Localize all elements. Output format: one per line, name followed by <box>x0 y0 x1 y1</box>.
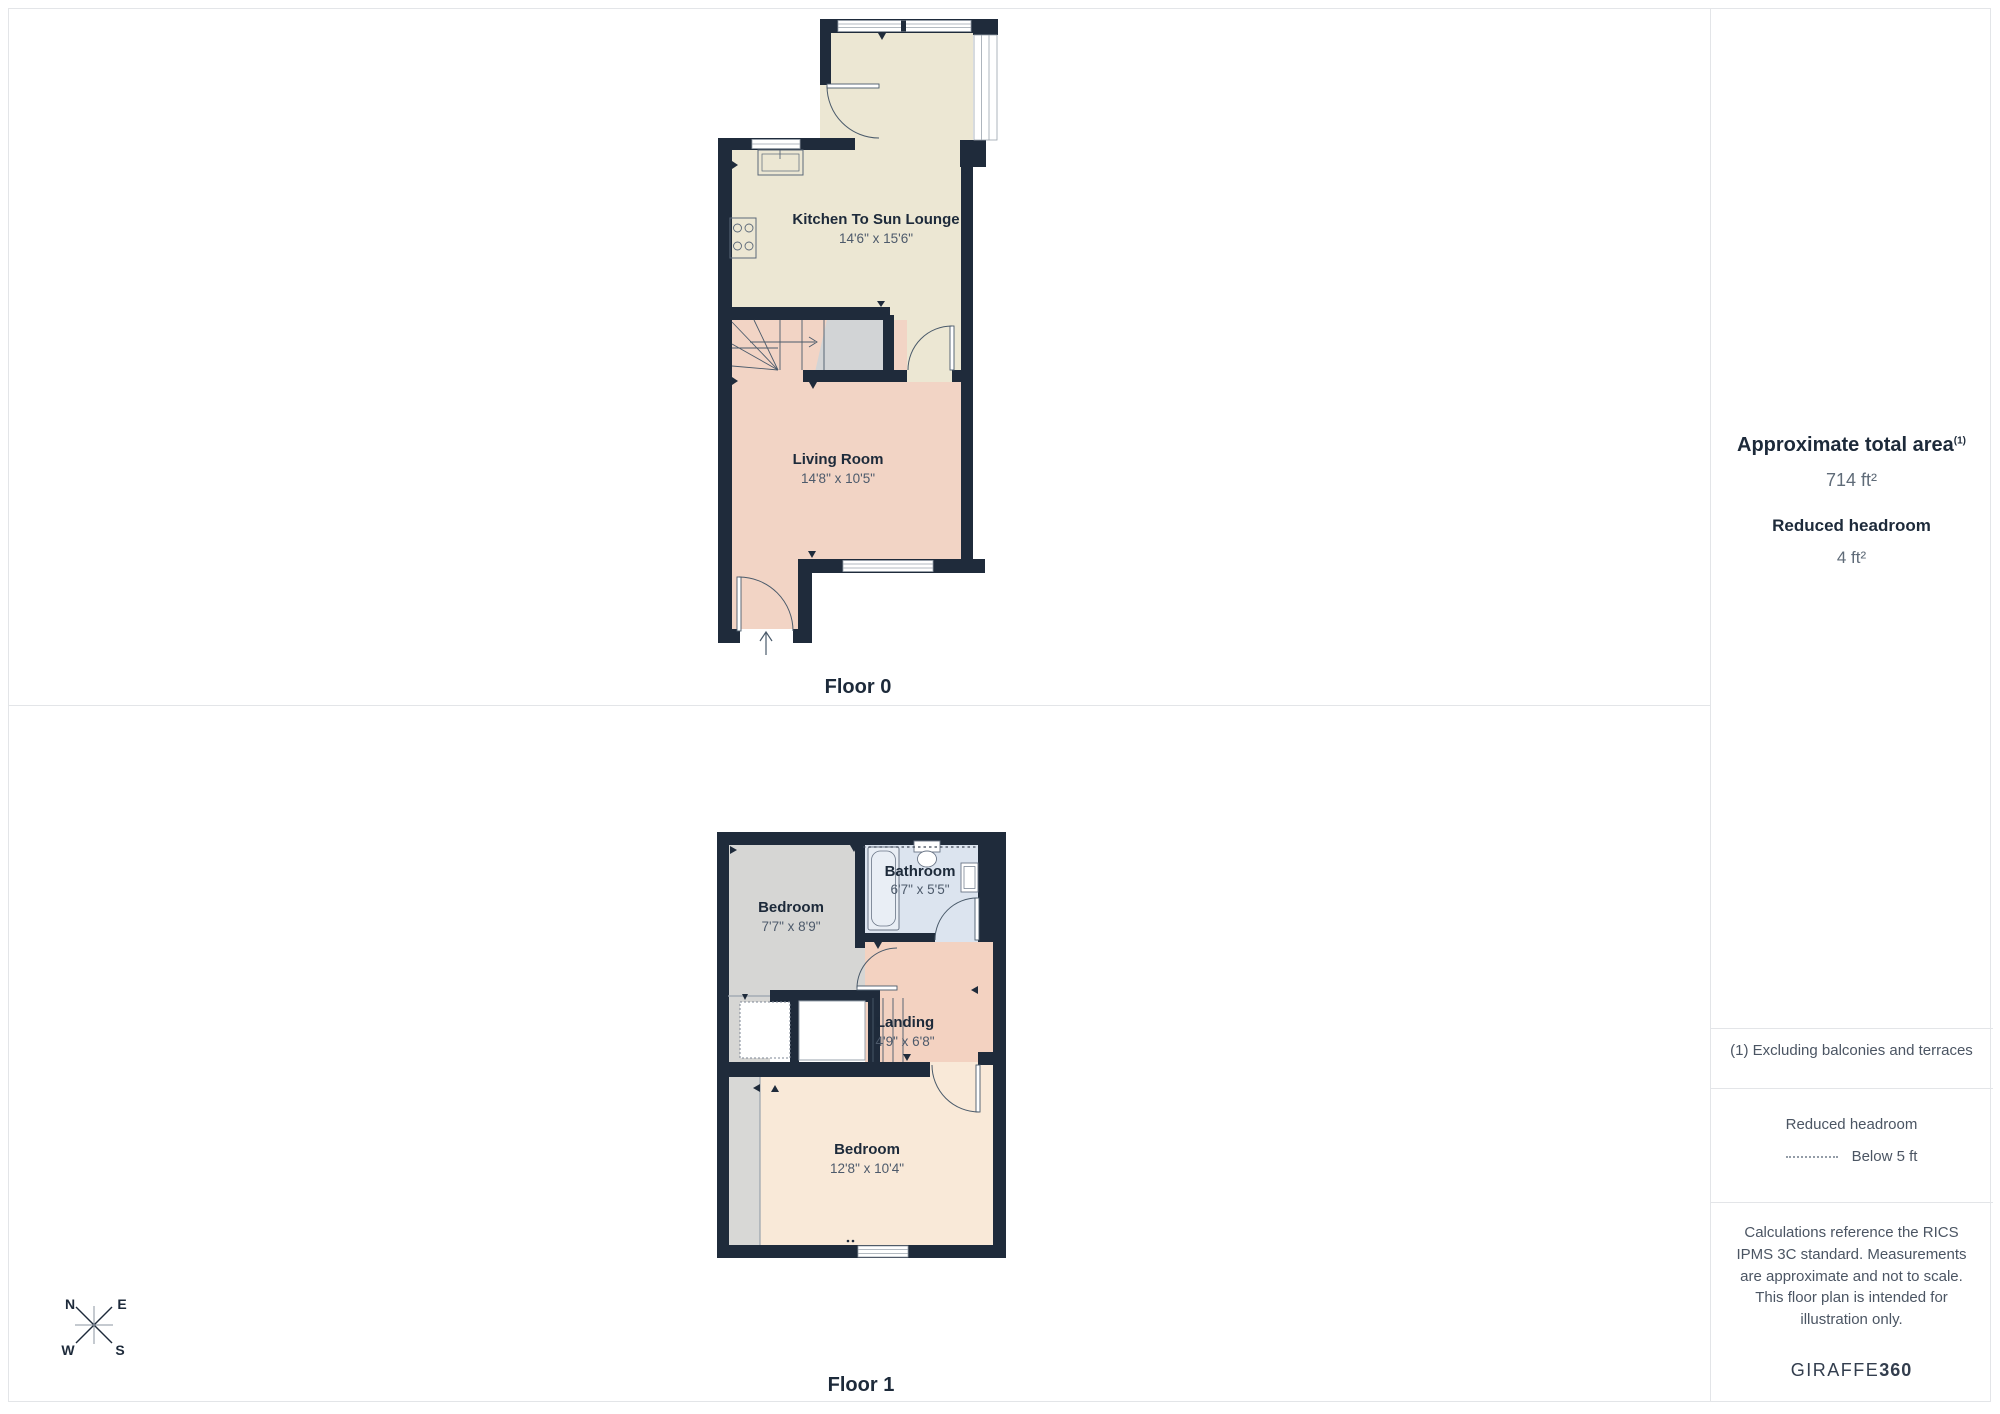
entrance-arrow-icon <box>760 632 772 655</box>
reduced-headroom-title: Reduced headroom <box>1711 516 1992 536</box>
floor0-caption: Floor 0 <box>718 676 998 699</box>
reduced-headroom-value: 4 ft² <box>1711 548 1992 568</box>
compass-icon: N E W S <box>46 1293 142 1389</box>
floor1-caption: Floor 1 <box>715 1374 1007 1397</box>
legend-row: Below 5 ft <box>1711 1148 1992 1165</box>
total-area-value: 714 ft² <box>1711 470 1992 491</box>
sidebar-section-divider-2 <box>1710 1088 1993 1089</box>
room-dims-label: 14'8" x 10'5" <box>801 471 875 486</box>
compass-w: W <box>61 1342 75 1358</box>
brand-logo: GIRAFFE360 <box>1711 1360 1992 1381</box>
bathroom-sink-icon <box>961 863 978 892</box>
total-area-label: Approximate total area <box>1737 434 1954 456</box>
floor-section-divider <box>8 705 1711 706</box>
eaves-storage <box>740 1001 865 1060</box>
floor0-plan: Kitchen To Sun Lounge 14'6" x 15'6" Livi… <box>718 17 998 662</box>
room-dims-label: 12'8" x 10'4" <box>830 1161 904 1176</box>
footnote-text: (1) Excluding balconies and terraces <box>1711 1042 1992 1059</box>
disclaimer-inner: Calculations reference the RICS IPMS 3C … <box>1734 1222 1970 1331</box>
room-name-label: Landing <box>876 1014 934 1031</box>
room-dims-label: 4'9" x 6'8" <box>875 1034 934 1049</box>
room-dims-label: 7'7" x 8'9" <box>761 919 820 934</box>
sidebar-section-divider-3 <box>1710 1202 1993 1203</box>
room-name-label: Kitchen To Sun Lounge <box>792 211 959 228</box>
floor1-window <box>858 1246 908 1257</box>
legend-item-label: Below 5 ft <box>1852 1148 1918 1165</box>
kitchen-sink-icon <box>758 150 803 175</box>
room-name-label: Bathroom <box>885 863 956 880</box>
brand-bold: 360 <box>1879 1360 1912 1380</box>
room-name-label: Bedroom <box>758 899 824 916</box>
footnote-marker: (1) <box>1954 435 1966 446</box>
disclaimer-text: Calculations reference the RICS IPMS 3C … <box>1711 1222 1992 1331</box>
total-area-title: Approximate total area(1) <box>1711 434 1992 457</box>
room-dims-label: 14'6" x 15'6" <box>839 231 913 246</box>
room-name-label: Bedroom <box>834 1141 900 1158</box>
dotted-line-icon <box>1786 1156 1838 1158</box>
compass-n: N <box>65 1296 75 1312</box>
room-name-label: Living Room <box>793 451 884 468</box>
compass-s: S <box>115 1342 124 1358</box>
room-dims-label: 6'7" x 5'5" <box>890 882 949 897</box>
legend-title: Reduced headroom <box>1711 1116 1992 1133</box>
brand-regular: GIRAFFE <box>1791 1360 1880 1380</box>
sidebar-section-divider-1 <box>1710 1028 1993 1029</box>
floor1-plan: Bedroom 7'7" x 8'9" Bathroom 6'7" x 5'5"… <box>715 830 1007 1260</box>
compass-e: E <box>117 1296 126 1312</box>
